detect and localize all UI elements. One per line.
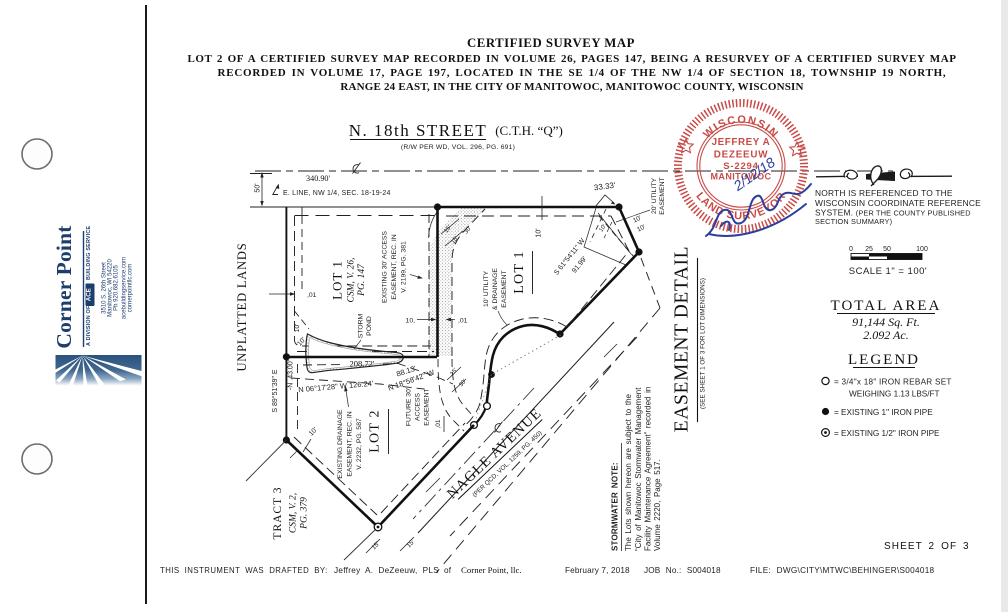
svg-text:SHEET 2 OF 3: SHEET 2 OF 3 [884,541,970,552]
svg-text:= EXISTING 1" IRON PIPE: = EXISTING 1" IRON PIPE [834,408,933,417]
svg-text:TOTAL AREA: TOTAL AREA [831,298,942,314]
svg-text:= EXISTING 1/2" IRON PIPE: = EXISTING 1/2" IRON PIPE [834,429,940,438]
svg-text:WEIGHING 1.13 LBS/FT: WEIGHING 1.13 LBS/FT [849,390,940,399]
svg-text:EASEMENT, REC. IN: EASEMENT, REC. IN [347,411,354,476]
svg-text:PG. 379: PG. 379 [300,497,310,530]
svg-text:,01: ,01 [435,419,442,428]
svg-text:SYSTEM. (PER THE COUNTY PUBLIS: SYSTEM. (PER THE COUNTY PUBLISHED [815,208,971,218]
svg-text:FUTURE 30': FUTURE 30' [406,388,413,426]
svg-text:EASEMENT: EASEMENT [659,177,666,214]
svg-text:JEFFREY A: JEFFREY A [712,137,771,148]
svg-text:TRACT 3: TRACT 3 [272,486,284,539]
svg-text:V. 2232, PG. 587: V. 2232, PG. 587 [356,418,363,470]
svg-text:EASEMENT: EASEMENT [501,270,508,307]
svg-text:JOB No.: S004018: JOB No.: S004018 [644,566,721,575]
svg-text:2.092 Ac.: 2.092 Ac. [863,328,908,342]
svg-text:Jeffrey A. DeZeeuw, PLS of: Jeffrey A. DeZeeuw, PLS of [334,566,452,575]
svg-text:CERTIFIED SURVEY MAP: CERTIFIED SURVEY MAP [467,36,635,50]
svg-text:208.72': 208.72' [350,359,375,369]
svg-text:V. 2199, PG. 381: V. 2199, PG. 381 [401,241,408,293]
svg-text:ACCESS: ACCESS [415,393,422,421]
svg-text:(SEE SHEET 1 OF 3 FOR LOT DIME: (SEE SHEET 1 OF 3 FOR LOT DIMENSIONS) [700,278,707,409]
svg-text:THIS INSTRUMENT WAS DRAFTED BY: THIS INSTRUMENT WAS DRAFTED BY: [160,566,328,575]
svg-text:EASEMENT, REC. IN: EASEMENT, REC. IN [391,234,398,299]
svg-text:,01: ,01 [307,292,317,299]
svg-text:340.90': 340.90' [306,174,331,183]
svg-text:The Lots shown hereon are subj: The Lots shown hereon are subject to the [624,393,633,551]
svg-text:50': 50' [255,183,262,192]
svg-text:(C.T.H. “Q”): (C.T.H. “Q”) [495,123,563,138]
svg-text:50: 50 [883,246,891,253]
svg-text:25: 25 [865,246,873,253]
svg-text:FILE: DWG\CITY\MTWC\BEHINGER\: FILE: DWG\CITY\MTWC\BEHINGER\S004018 [750,566,935,575]
svg-text:Facility Maintenance Agreement: Facility Maintenance Agreement” recorded… [644,387,653,551]
svg-text:POND: POND [366,316,373,336]
svg-text:STORM: STORM [358,313,365,338]
svg-text:Corner Point: Corner Point [52,225,76,349]
svg-text:NORTH IS REFERENCED TO THE: NORTH IS REFERENCED TO THE [815,188,953,198]
svg-text:EASEMENT: EASEMENT [424,388,431,425]
svg-text:E. LINE, NW 1/4, SEC. 18-19-24: E. LINE, NW 1/4, SEC. 18-19-24 [283,190,391,197]
svg-text:& DRAINAGE: & DRAINAGE [492,268,499,310]
svg-text:Volume 2220, Page 517.: Volume 2220, Page 517. [653,459,662,551]
svg-text:10': 10' [536,228,543,237]
svg-text:10' UTILITY: 10' UTILITY [483,271,490,308]
svg-text:cornerpointllc.com: cornerpointllc.com [127,264,133,313]
svg-text:“City of Manitowoc Stormwater: “City of Manitowoc Stormwater Management [634,387,643,551]
svg-text:ACE: ACE [85,288,92,301]
svg-text:STORMWATER NOTE:: STORMWATER NOTE: [611,462,620,551]
svg-text:Ph 920.682.6105: Ph 920.682.6105 [113,264,119,310]
svg-text:LOT 1: LOT 1 [512,250,527,293]
svg-text:UNPLATTED LANDS: UNPLATTED LANDS [235,242,249,371]
svg-text:WISCONSIN COORDINATE REFERENCE: WISCONSIN COORDINATE REFERENCE [815,198,981,208]
svg-text:EXISTING 30' ACCESS: EXISTING 30' ACCESS [382,231,389,303]
svg-text:EXISTING DRAINAGE: EXISTING DRAINAGE [337,409,344,479]
svg-text:-N .43.00': -N .43.00' [288,360,295,390]
svg-text:A DIVISION OF: A DIVISION OF [86,305,92,346]
svg-text:SECTION SUMMARY): SECTION SUMMARY) [815,217,892,226]
svg-text:(R/W PER WD, VOL. 296, PG. 691: (R/W PER WD, VOL. 296, PG. 691) [401,144,515,151]
svg-text:CSM, V. 2,: CSM, V. 2, [289,493,299,533]
svg-text:February 7, 2018: February 7, 2018 [565,566,630,575]
svg-text:CSM, V. 26,: CSM, V. 26, [347,258,357,303]
svg-text:RANGE 24 EAST, IN THE CITY OF: RANGE 24 EAST, IN THE CITY OF MANITOWOC,… [340,81,803,93]
svg-text:0: 0 [849,246,853,253]
svg-text:LOT 2: LOT 2 [368,409,383,452]
svg-text:,01: ,01 [458,318,468,325]
svg-text:EASEMENT DETAIL: EASEMENT DETAIL [672,246,693,432]
svg-text:Corner Point, llc.: Corner Point, llc. [461,565,522,575]
svg-text:10': 10' [294,324,301,333]
svg-text:LEGEND: LEGEND [848,352,920,368]
svg-text:BUILDING SERVICE: BUILDING SERVICE [86,225,92,280]
svg-text:S 89°51'39" E: S 89°51'39" E [271,369,279,413]
svg-text:20' UTILITY: 20' UTILITY [651,178,658,215]
svg-text:N. 18th STREET: N. 18th STREET [349,121,488,140]
svg-text:91,144 Sq. Ft.: 91,144 Sq. Ft. [852,315,920,329]
svg-text:acebuildingservice.com: acebuildingservice.com [121,257,127,319]
svg-text:LOT 1: LOT 1 [330,260,345,300]
svg-text:SCALE 1" = 100': SCALE 1" = 100' [849,266,927,277]
svg-text:RECORDED IN VOLUME 17, PAGE 19: RECORDED IN VOLUME 17, PAGE 197, LOCATED… [218,67,947,79]
svg-text:LOT 2 OF A CERTIFIED SURVEY MA: LOT 2 OF A CERTIFIED SURVEY MAP RECORDED… [188,53,957,65]
svg-text:100: 100 [916,246,928,253]
svg-text:= 3/4"x 18" IRON REBAR SET: = 3/4"x 18" IRON REBAR SET [834,378,952,387]
svg-text:PG. 147: PG. 147 [357,263,367,297]
svg-text:10,: 10, [406,318,416,325]
